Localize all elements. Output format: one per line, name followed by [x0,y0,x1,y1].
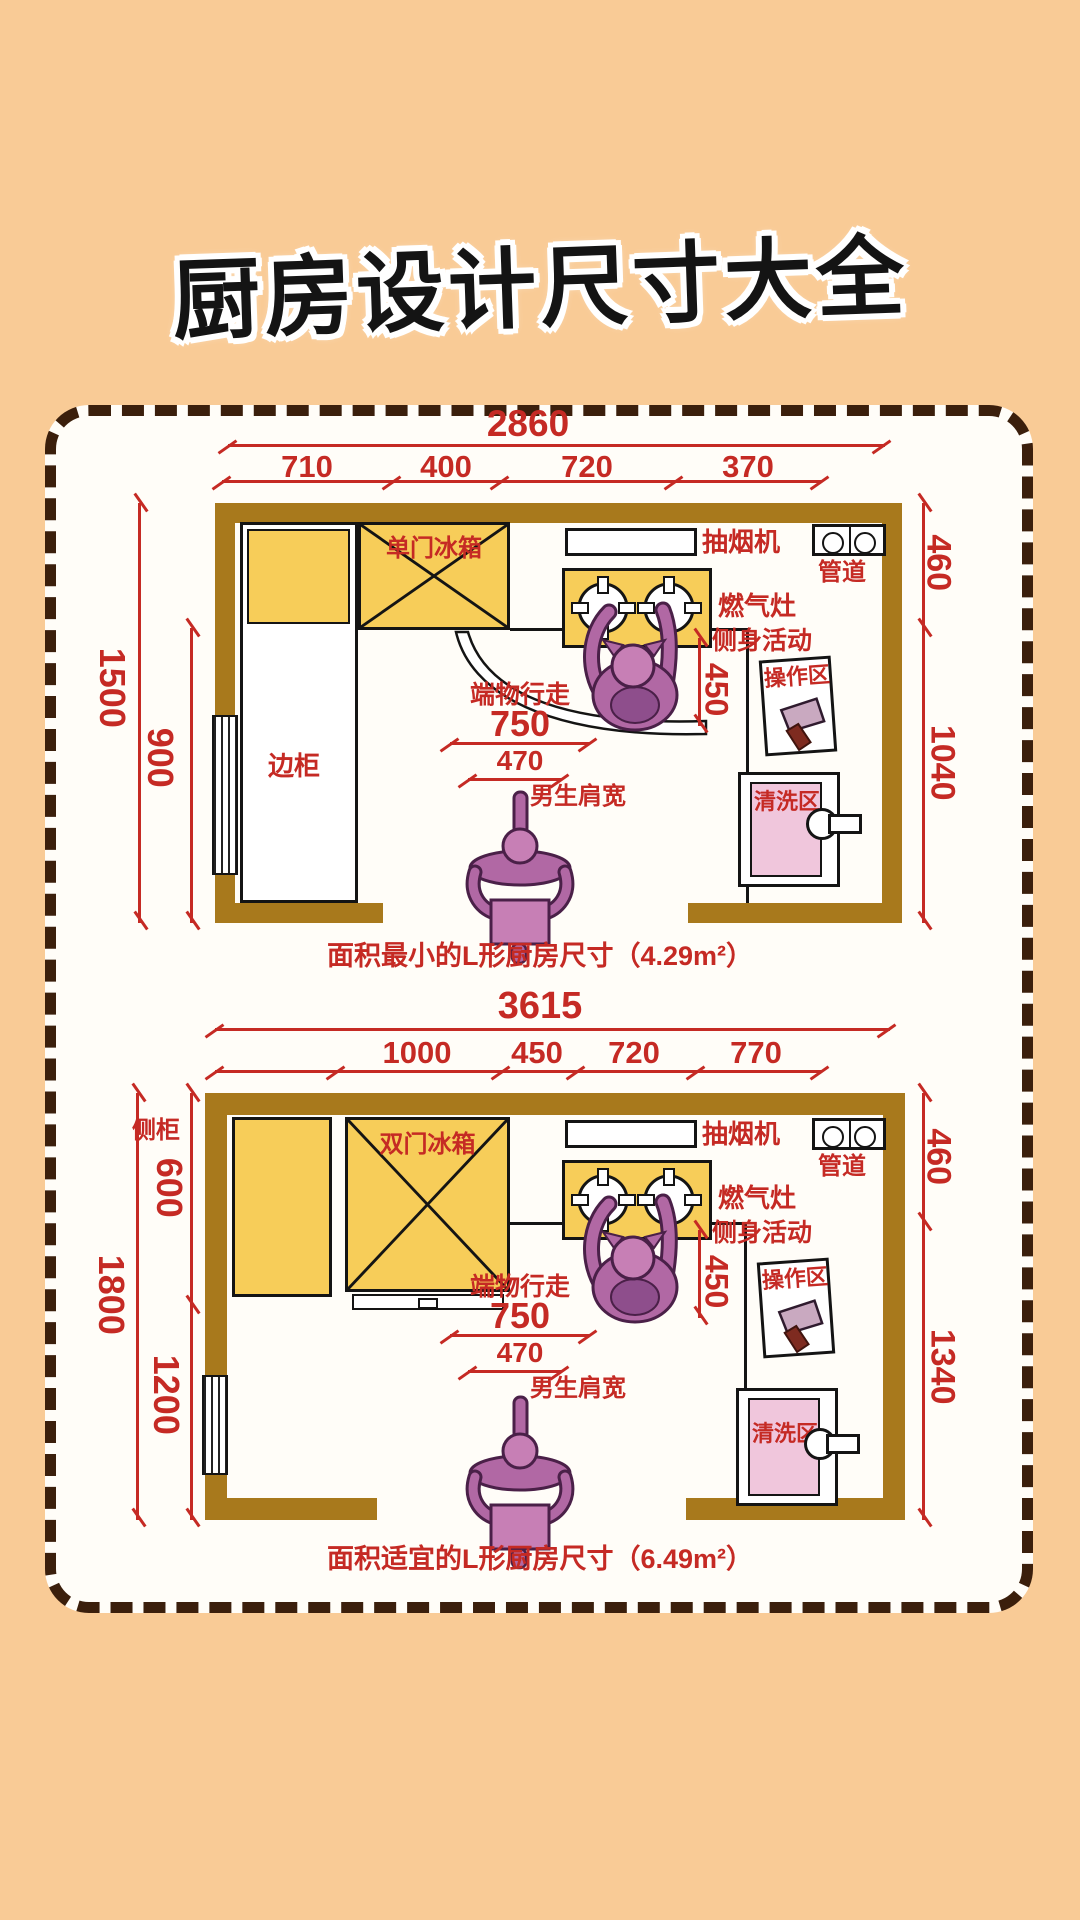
faucet-spout [828,814,862,834]
plan1-caption: 面积最小的L形厨房尺寸（4.29m²） [240,942,840,972]
plan1-left-lower-dim: 900 [140,693,180,823]
plan1-total-dim: 2860 [428,404,628,445]
plan2-left-lower-dim: 1200 [146,1325,186,1465]
cleaver-icon [768,1293,828,1357]
plan1-wall-top [215,503,902,523]
plan1-cook-figure [565,598,705,733]
plan1-op-zone: 操作区 [759,656,838,757]
plan1-stove-label: 燃气灶 [718,592,796,621]
plan2-right-bottom-dim: 1340 [923,1297,960,1437]
plan1-wall-bottom-left [215,903,383,923]
plan1-side-cabinet-label: 边柜 [268,752,320,781]
plan2-pipe-label: 管道 [818,1154,866,1180]
faucet-spout [826,1434,860,1454]
plan1-seg1-dim: 710 [257,450,357,484]
plan1-wall-bottom-right [688,903,902,923]
plan2-sliding-door [202,1375,228,1475]
plan2-seg1-dim: 1000 [367,1036,467,1070]
plan1-seg4-dim: 370 [698,450,798,484]
plan2-wall-top [205,1093,905,1115]
plan2-wall-left-upper [205,1093,227,1375]
plan2-left-inner-dimline [190,1093,193,1520]
plan1-carry-dim: 750 [455,704,585,744]
plan2-range-hood [565,1120,697,1148]
plan2-cook-figure [565,1190,705,1325]
plan2-side-cabinet [232,1117,332,1297]
plan1-wall-right [882,503,902,923]
plan2-total-dimline [215,1028,890,1031]
page-title: 厨房设计尺寸大全 [0,199,1080,364]
plan1-hood-label: 抽烟机 [702,528,780,557]
plan1-wall-left-upper [215,503,235,715]
plan2-pipe-box [812,1118,886,1150]
kitchen-dimension-infographic: { "title": "厨房设计尺寸大全", "colors": {"backg… [0,0,1080,1920]
plan2-right-top-dim: 460 [919,1097,956,1217]
plan1-op-zone-label: 操作区 [763,663,831,692]
plan1-wash-zone-label: 清洗区 [754,790,820,814]
plan1-upper-cabinet [247,529,350,624]
cleaver-icon [770,691,830,755]
plan1-shoulder-dim: 470 [465,746,575,777]
plan1-left-lower-dimline [190,628,193,923]
plan2-caption: 面积适宜的L形厨房尺寸（6.49m²） [240,1545,840,1575]
plan1-seg-dimline [222,480,822,483]
plan2-seg2-dim: 450 [487,1036,587,1070]
plan1-right-top-dim: 460 [919,503,956,623]
plan2-op-zone: 操作区 [757,1258,836,1359]
plan1-left-total-dim: 1500 [92,618,132,758]
plan2-op-zone-label: 操作区 [761,1265,829,1294]
plan1-fridge-label: 单门冰箱 [358,536,510,562]
plan2-fridge-base-handle [418,1298,438,1309]
plan2-hood-label: 抽烟机 [702,1120,780,1149]
plan2-wall-bottom-left [205,1498,377,1520]
plan1-pipe-box [812,524,886,556]
plan2-seg3-dim: 720 [584,1036,684,1070]
plan2-left-total-dim: 1800 [91,1220,131,1370]
plan1-range-hood [565,528,697,556]
plan1-sliding-door [212,715,238,875]
plan1-walking-figure [448,790,593,965]
plan1-shoulder-dimline [468,778,562,781]
plan1-seg3-dim: 720 [537,450,637,484]
plan1-total-dimline [228,444,885,447]
plan1-activity-dim: 450 [698,630,733,750]
plan2-left-total-dimline [136,1093,139,1520]
plan2-fridge-label: 双门冰箱 [345,1132,510,1158]
plan2-carry-dim: 750 [455,1296,585,1336]
plan2-seg4-dim: 770 [706,1036,806,1070]
plan2-wall-right [883,1093,905,1520]
plan2-shoulder-dim: 470 [465,1338,575,1369]
plan1-seg2-dim: 400 [396,450,496,484]
plan1-pipe-label: 管道 [818,560,866,586]
plan2-seg-dimline [215,1070,822,1073]
plan1-right-bottom-dim: 1040 [923,693,960,833]
plan2-total-dim: 3615 [440,986,640,1028]
plan2-left-upper-dim: 600 [149,1123,189,1253]
plan2-stove-label: 燃气灶 [718,1184,796,1213]
plan2-activity-dim: 450 [698,1222,733,1342]
plan2-shoulder-dimline [468,1370,562,1373]
